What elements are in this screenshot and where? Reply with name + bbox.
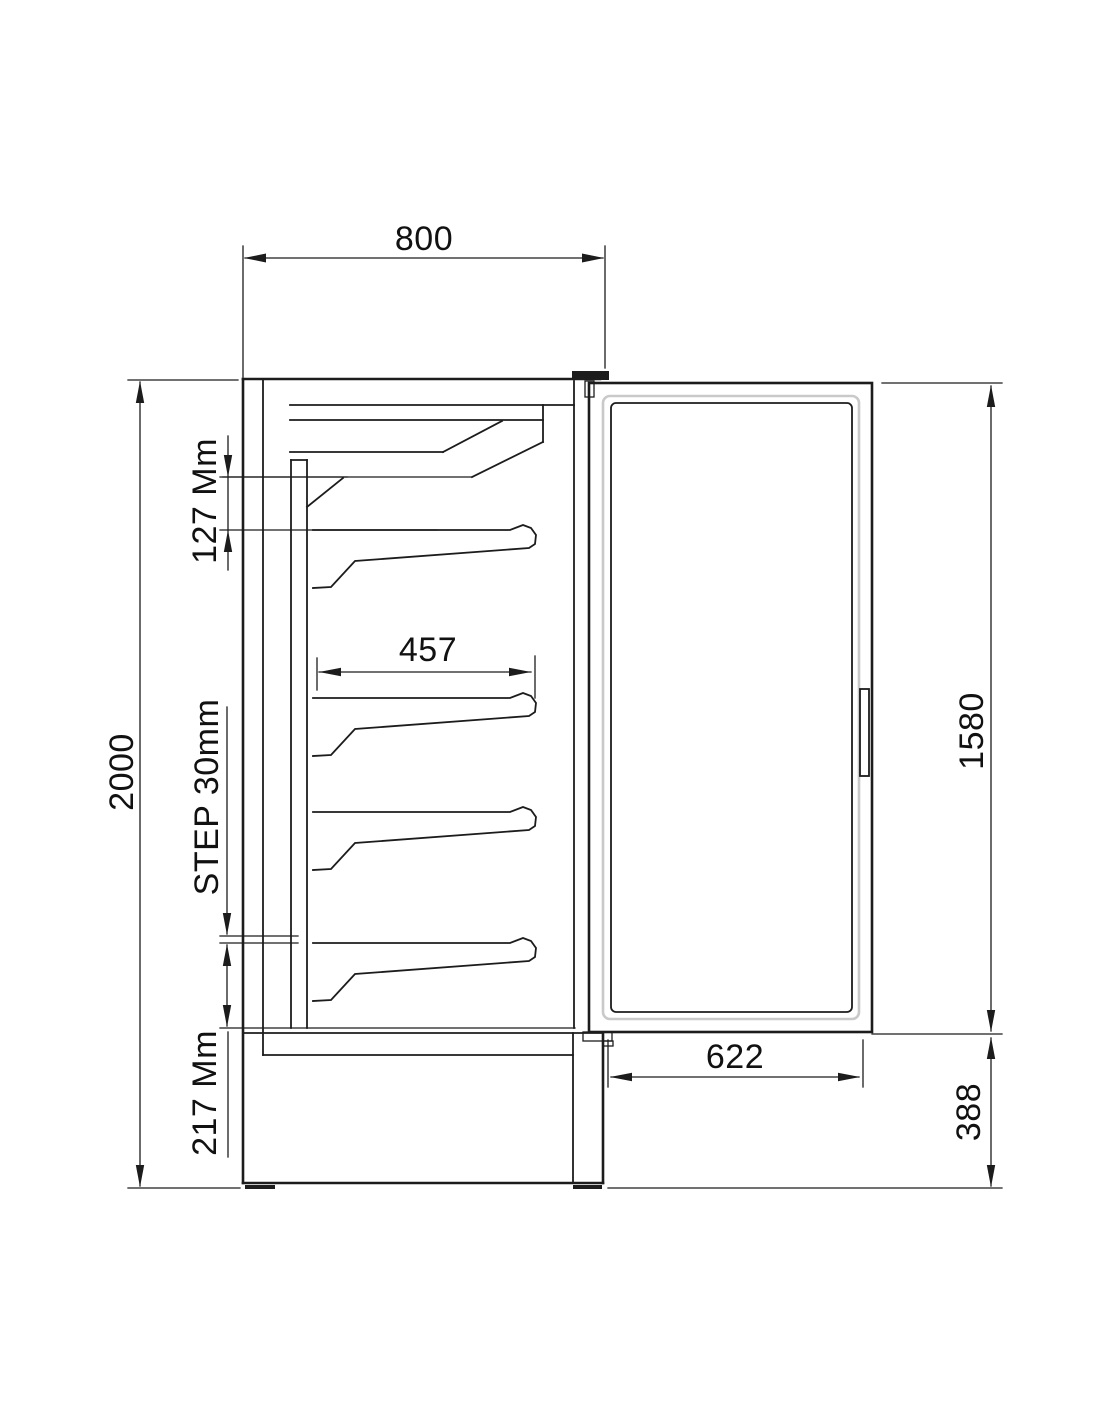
cabinet-body (220, 379, 600, 1183)
arrow-622-right (838, 1073, 860, 1081)
label-canopy-shelf-gap: 127 Mm (186, 438, 224, 564)
glass-door (583, 381, 872, 1046)
arrow-388-down (987, 1165, 995, 1187)
door-outer-frame (589, 383, 872, 1032)
label-overall-height: 2000 (103, 733, 141, 811)
arrow-457-right (509, 668, 531, 676)
technical-drawing-cabinet-side-view: 800 2000 127 Mm 457 STEP 30mm 217 Mm 158… (0, 0, 1100, 1422)
label-top-width: 800 (395, 220, 453, 258)
arrow-step-down (223, 913, 231, 935)
door-handle (860, 689, 869, 776)
canopy-duct (223, 405, 574, 477)
arrow-622-left (610, 1073, 632, 1081)
arrow-388-up (987, 1037, 995, 1059)
door-top-hinge-plate (572, 371, 609, 380)
shelves (313, 525, 536, 1001)
canopy-diagonal-front (472, 442, 543, 477)
shelf-4 (313, 938, 536, 1001)
linework (128, 246, 1002, 1188)
door-glass-edge (611, 403, 852, 1012)
label-shelf-step: STEP 30mm (188, 699, 226, 896)
door-glass-gasket (603, 396, 859, 1019)
shelf-3 (313, 807, 536, 870)
label-shelf-depth: 457 (399, 631, 457, 669)
label-base-height: 388 (950, 1083, 988, 1141)
arrow-800-right (582, 254, 604, 263)
arrow-217-up (223, 944, 231, 966)
arrow-1580-up (987, 385, 995, 407)
arrow-1580-down (987, 1010, 995, 1032)
label-bottom-section: 217 Mm (186, 1030, 224, 1156)
drawing-canvas: 800 2000 127 Mm 457 STEP 30mm 217 Mm 158… (0, 0, 1100, 1422)
arrow-800-left (244, 254, 266, 263)
arrow-217-down (223, 1005, 231, 1027)
label-door-width: 622 (706, 1038, 764, 1076)
shelf-1 (313, 525, 536, 588)
canopy-diagonal-inner (443, 421, 502, 452)
cabinet-base (243, 1033, 603, 1187)
back-panel-deflector (307, 478, 343, 507)
shelf-2 (313, 693, 536, 756)
label-door-height: 1580 (953, 692, 991, 770)
arrow-2000-bottom (136, 1165, 144, 1187)
arrow-127-up (224, 530, 232, 552)
arrow-127-down (224, 455, 232, 477)
arrow-457-left (319, 668, 341, 676)
arrow-2000-top (136, 381, 144, 403)
